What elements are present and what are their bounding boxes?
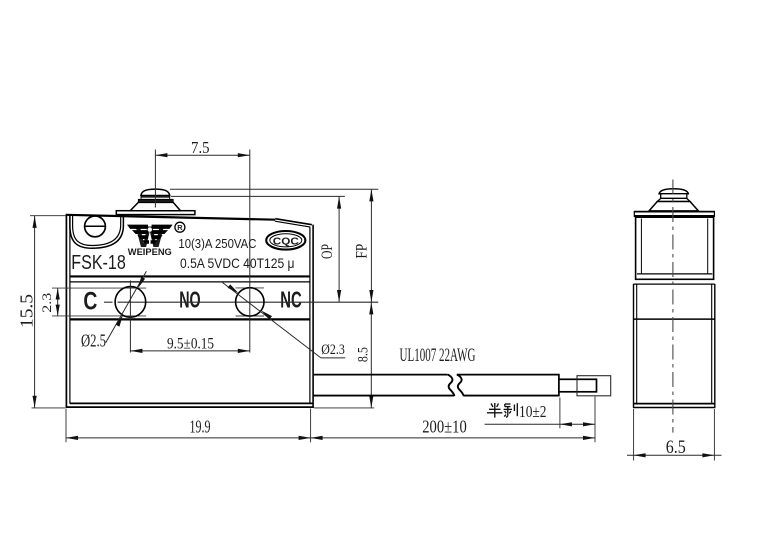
svg-text:7.5: 7.5 (191, 138, 210, 157)
svg-text:WEIPENG: WEIPENG (128, 247, 172, 258)
svg-text:15.5: 15.5 (16, 294, 36, 328)
svg-text:C: C (83, 288, 97, 316)
svg-text:19.9: 19.9 (190, 417, 211, 437)
svg-text:NO: NO (179, 286, 200, 312)
svg-text:8.5: 8.5 (355, 347, 371, 362)
svg-text:Ø2.5: Ø2.5 (81, 330, 106, 350)
svg-text:9.5±0.15: 9.5±0.15 (167, 335, 214, 352)
svg-text:UL1007 22AWG: UL1007 22AWG (400, 345, 476, 366)
svg-text:R: R (177, 223, 183, 232)
svg-text:FSK-18: FSK-18 (71, 251, 126, 274)
svg-text:OP: OP (319, 244, 336, 259)
svg-text:2.3: 2.3 (40, 293, 54, 313)
svg-text:6.5: 6.5 (666, 438, 686, 458)
svg-text:10±2: 10±2 (519, 402, 547, 421)
svg-text:NC: NC (280, 286, 301, 312)
svg-text:Ø2.3: Ø2.3 (321, 342, 345, 358)
svg-text:CQC: CQC (273, 235, 299, 247)
svg-text:10(3)A 250VAC: 10(3)A 250VAC (178, 236, 256, 251)
svg-text:FP: FP (353, 244, 370, 259)
svg-text:0.5A 5VDC 40T125 μ: 0.5A 5VDC 40T125 μ (180, 256, 295, 271)
svg-text:200±10: 200±10 (422, 416, 467, 436)
